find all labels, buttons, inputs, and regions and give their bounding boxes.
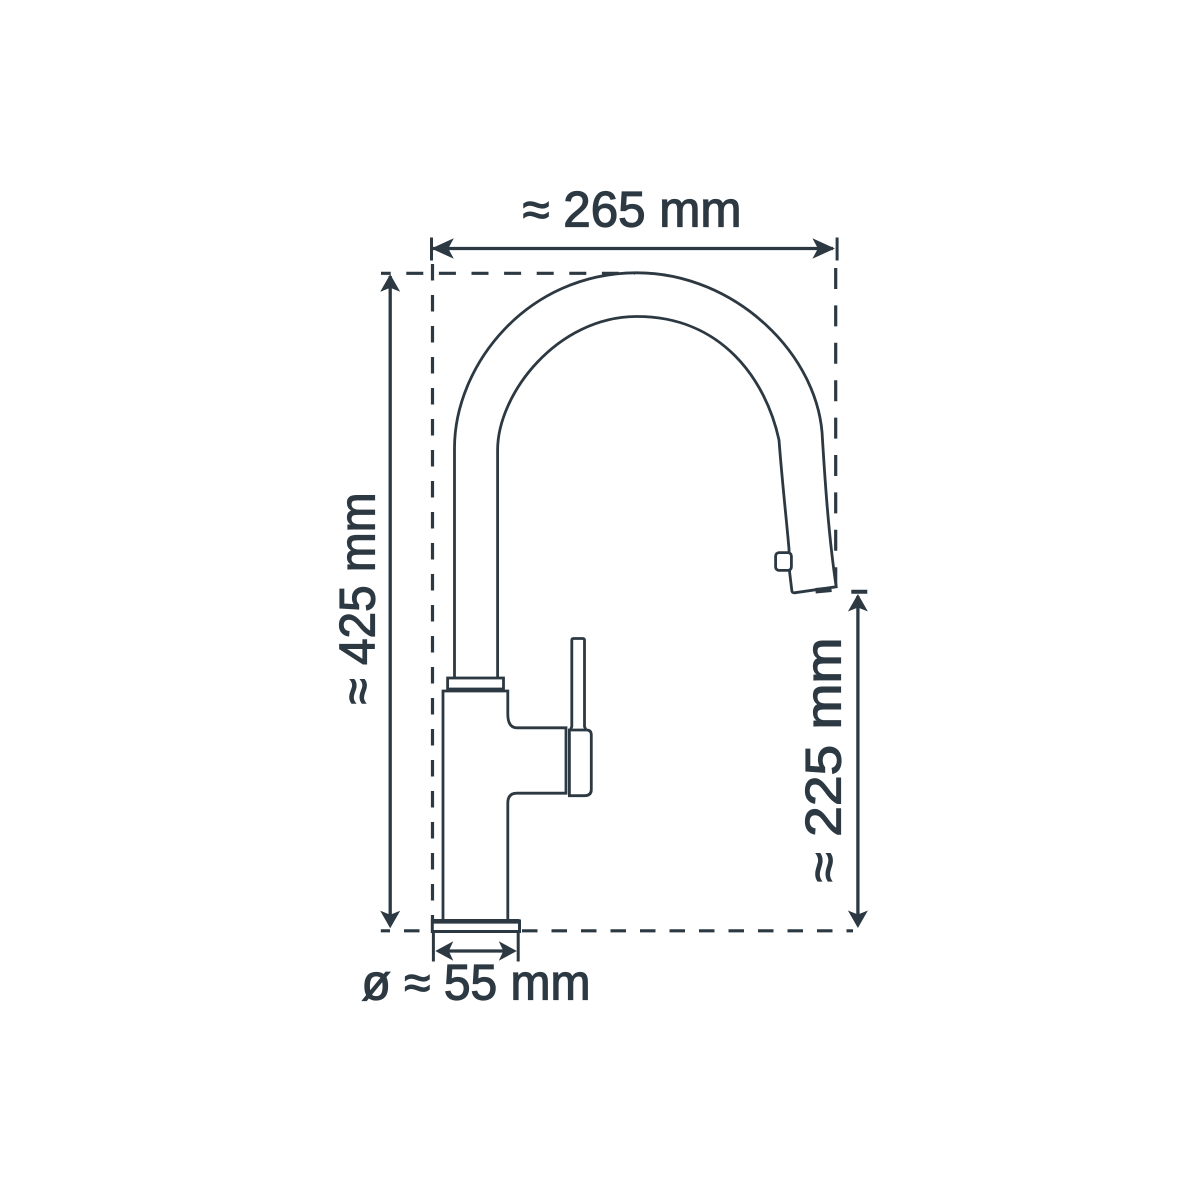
svg-text:≈ 265 mm: ≈ 265 mm [523, 182, 742, 238]
svg-text:ø ≈ 55 mm: ø ≈ 55 mm [362, 955, 591, 1011]
svg-text:≈ 225 mm: ≈ 225 mm [796, 638, 852, 883]
svg-text:≈ 425 mm: ≈ 425 mm [330, 493, 386, 705]
